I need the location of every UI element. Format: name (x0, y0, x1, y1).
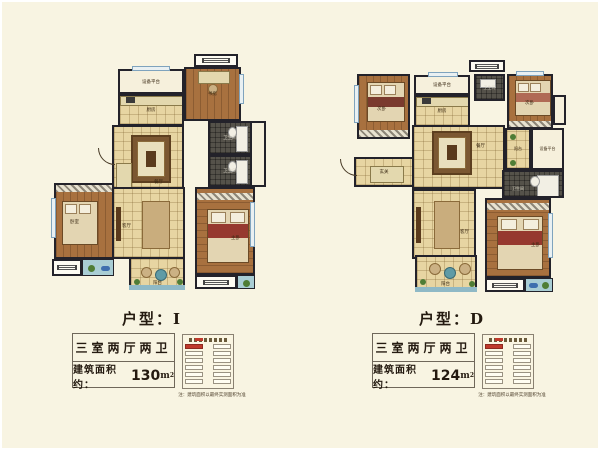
kitchen-sink-icon (126, 97, 135, 103)
room-living: 客厅 (412, 189, 476, 259)
bathtub-icon (236, 160, 248, 184)
room-dining: 餐厅 (412, 125, 505, 189)
room-kitchen: 厨房 (118, 94, 184, 126)
balcony-rail (415, 287, 477, 292)
room-label: 客厅 (122, 223, 131, 229)
keyplan-unit-highlighted (485, 344, 503, 349)
room-balcony: 阳台 (415, 255, 477, 291)
room-balcony-side: 阳台 (505, 128, 531, 170)
room-label: 卫生间 (512, 186, 524, 192)
keyplan-unit (185, 365, 203, 370)
room-entry: 玄关 (354, 157, 414, 187)
keyplan-unit (485, 358, 503, 363)
bathtub-icon (537, 175, 559, 197)
pillow-icon (501, 219, 517, 230)
spec-rooms: 三室两厅两卫 (373, 334, 474, 362)
area-label: 建筑面积约： (373, 361, 429, 391)
bed (367, 82, 405, 122)
unit-title-value: D (470, 310, 485, 328)
spec-box-d: 三室两厅两卫 建筑面积约： 124 m 2 (372, 333, 475, 388)
unit-title-d: 户型：D (402, 308, 502, 329)
balcony-table-icon (444, 267, 456, 279)
room-label: 书房 (208, 91, 217, 97)
area-number: 130 (131, 368, 160, 384)
tv-cabinet (416, 207, 421, 243)
dining-table (447, 145, 457, 160)
room-label: 设备平台 (142, 79, 160, 85)
disclaimer-note-i: 注：建筑面积以最终实测面积为准 (162, 392, 262, 398)
pillow-icon (211, 212, 226, 223)
room-bedroom: 卧室 (54, 183, 114, 259)
room-label: 卫生间 (223, 168, 237, 174)
keyplan-unit (485, 379, 503, 384)
keyplan-unit (513, 351, 531, 356)
keyplan-column-right (513, 344, 531, 384)
pillow-icon (518, 83, 529, 92)
room-bedroom-2b: 次卧 (507, 74, 553, 129)
toilet-icon (530, 176, 540, 187)
room-bathroom-2: 卫生间 (502, 170, 564, 198)
room-master-bedroom: 主卧 (195, 187, 255, 275)
room-label: 主卧 (531, 242, 540, 248)
plant-ledge (82, 259, 114, 276)
keyplan-unit (185, 379, 203, 384)
blanket (208, 224, 248, 238)
keyplan-column-left (485, 344, 503, 384)
keyplan-thumbnail-i (182, 334, 234, 389)
unit-title-label: 户型： (122, 310, 173, 328)
wardrobe (509, 121, 551, 127)
ac-unit-icon (194, 54, 238, 67)
unit-title-label: 户型： (419, 310, 470, 328)
utility-shaft (553, 95, 566, 125)
window (516, 71, 544, 76)
keyplan-unit (513, 372, 531, 377)
study-desk (198, 71, 230, 84)
room-equipment-platform-1: 设备平台 (414, 75, 470, 95)
unit-title-value: I (173, 310, 182, 328)
floorplan-poster: 设备平台 厨房 书房 卫生间 卫生间 餐厅 (0, 0, 600, 450)
balcony-chair-icon (169, 267, 180, 278)
area-sup: 2 (170, 372, 174, 379)
keyplan-columns (485, 344, 531, 384)
bed (62, 201, 98, 245)
plant-icon (542, 282, 549, 289)
window (51, 198, 56, 238)
keyplan-header-accent (495, 338, 503, 341)
pillow-icon (370, 85, 382, 95)
room-label: 卫生间 (223, 135, 237, 141)
ac-grille-icon (203, 280, 230, 285)
room-label: 客厅 (460, 229, 469, 235)
pillow-icon (79, 204, 91, 214)
room-label: 设备平台 (433, 82, 451, 88)
room-label: 厨房 (147, 107, 156, 113)
room-label: 玄关 (380, 169, 389, 175)
bed (515, 80, 551, 116)
keyplan-column-right (213, 344, 231, 384)
window (239, 74, 244, 104)
room-bedroom-2a: 次卧 (357, 74, 410, 139)
room-label: 设备平台 (540, 146, 556, 152)
keyplan-unit (213, 351, 231, 356)
bathtub-icon (236, 126, 248, 152)
keyplan-unit (513, 379, 531, 384)
dining-rug (432, 131, 472, 175)
ac-grille-icon (492, 283, 518, 288)
room-label: 主卧 (231, 235, 240, 241)
keyplan-header (189, 338, 227, 342)
sofa (434, 201, 460, 249)
keyplan-thumbnail-d (482, 334, 534, 389)
plant-icon (243, 280, 250, 287)
keyplan-unit (485, 351, 503, 356)
pillow-icon (384, 85, 396, 95)
blanket (368, 97, 404, 107)
disclaimer-note-d: 注：建筑面积以最终实测面积为准 (462, 392, 562, 398)
room-dining: 餐厅 (112, 125, 184, 189)
sofa (142, 201, 170, 249)
plant-icon (510, 160, 516, 166)
ac-unit-icon (52, 259, 82, 276)
kitchen-sink-icon (422, 98, 431, 104)
room-living: 客厅 (112, 187, 185, 259)
pillow-icon (230, 212, 245, 223)
keyplan-unit (213, 372, 231, 377)
window (132, 66, 170, 71)
room-label: 餐厅 (154, 179, 163, 185)
pillow-icon (530, 83, 541, 92)
keyplan-unit (485, 372, 503, 377)
wardrobe (197, 193, 253, 200)
dining-rug (131, 135, 171, 183)
spec-rooms: 三室两厅两卫 (73, 334, 174, 362)
tv-cabinet (116, 207, 121, 241)
spec-area: 建筑面积约： 130 m 2 (73, 362, 174, 389)
ac-grille-icon (57, 265, 77, 270)
room-master-bedroom: 主卧 (485, 198, 551, 278)
room-kitchen: 厨房 (414, 95, 470, 127)
area-label: 建筑面积约： (73, 361, 129, 391)
shoe-icon (529, 283, 538, 288)
room-equipment-platform: 设备平台 (118, 69, 184, 94)
plant-icon (88, 265, 95, 272)
keyplan-unit (513, 344, 531, 349)
room-label: 次卧 (525, 100, 534, 106)
keyplan-columns (185, 344, 231, 384)
keyplan-unit (485, 365, 503, 370)
spec-box-i: 三室两厅两卫 建筑面积约： 130 m 2 (72, 333, 175, 388)
window (548, 213, 553, 258)
ac-unit-icon (469, 60, 505, 72)
pillow-icon (65, 204, 77, 214)
floorplan-unit-i: 设备平台 厨房 书房 卫生间 卫生间 餐厅 (44, 52, 268, 294)
room-label: 餐厅 (476, 143, 485, 149)
floorplan-unit-d: 次卧 设备平台 厨房 卫生间 次卧 (348, 55, 572, 297)
room-label: 卧室 (70, 219, 79, 225)
room-label: 卫生间 (484, 85, 496, 91)
wardrobe (359, 130, 408, 137)
balcony-chair-icon (429, 263, 441, 275)
ac-grille-icon (202, 58, 230, 63)
plant-icon (510, 134, 516, 140)
window (354, 85, 359, 123)
plant-ledge (237, 275, 255, 289)
area-unit: m (160, 371, 170, 381)
entry-door-arc (340, 159, 357, 176)
keyplan-unit (185, 372, 203, 377)
area-number: 124 (431, 368, 460, 384)
keyplan-column-left (185, 344, 203, 384)
pillow-icon (523, 219, 539, 230)
area-unit: m (460, 371, 470, 381)
keyplan-unit (185, 358, 203, 363)
keyplan-unit (213, 379, 231, 384)
keyplan-unit (185, 351, 203, 356)
plant-icon (420, 279, 426, 285)
keyplan-unit (513, 358, 531, 363)
room-label: 阳台 (514, 146, 522, 152)
room-study: 书房 (184, 67, 241, 121)
keyplan-header-accent (195, 338, 203, 341)
master-bed (207, 209, 249, 263)
window (250, 202, 255, 247)
shoe-icon (101, 266, 110, 271)
wardrobe (56, 185, 112, 192)
keyplan-unit-highlighted (185, 344, 203, 349)
room-bathroom-1: 卫生间 (474, 74, 505, 101)
ac-unit-icon (195, 275, 237, 289)
keyplan-unit (213, 358, 231, 363)
entry-door-arc (98, 148, 115, 165)
balcony-chair-icon (459, 263, 471, 275)
utility-shaft (250, 121, 266, 187)
area-sup: 2 (470, 372, 474, 379)
ac-unit-icon (485, 278, 525, 292)
sideboard (116, 163, 132, 189)
keyplan-unit (213, 365, 231, 370)
ac-grille-icon (475, 64, 498, 69)
room-label: 阳台 (441, 281, 450, 287)
room-bathroom-2: 卫生间 (208, 155, 252, 187)
room-label: 阳台 (153, 280, 162, 286)
dining-table (146, 151, 156, 167)
room-label: 厨房 (438, 108, 447, 114)
keyplan-unit (513, 365, 531, 370)
room-bathroom-1: 卫生间 (208, 121, 252, 155)
balcony-chair-icon (141, 267, 152, 278)
wardrobe (487, 203, 549, 210)
window (428, 72, 458, 77)
room-equipment-platform-2: 设备平台 (531, 128, 564, 170)
unit-title-i: 户型：I (102, 308, 202, 329)
spec-area: 建筑面积约： 124 m 2 (373, 362, 474, 389)
room-label: 次卧 (377, 106, 386, 112)
plant-ledge (525, 278, 553, 292)
keyplan-unit (213, 344, 231, 349)
keyplan-header (489, 338, 527, 342)
